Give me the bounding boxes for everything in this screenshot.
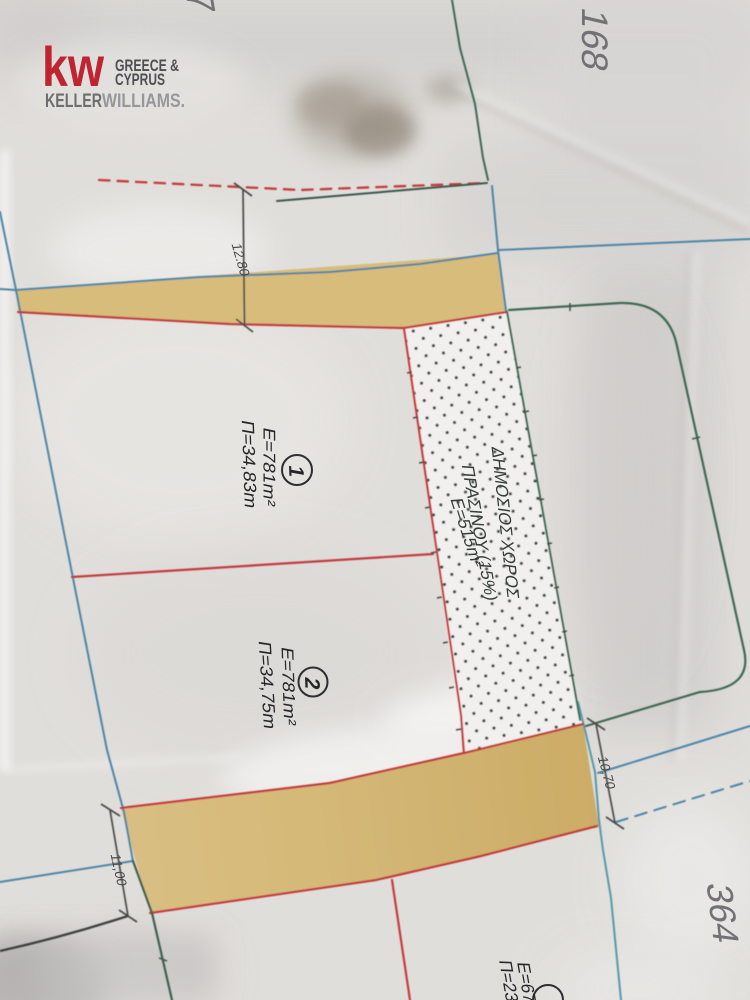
svg-text:KELLER: KELLER	[45, 91, 102, 112]
svg-text:kw: kw	[42, 35, 104, 98]
svg-text:Π=34,83m: Π=34,83m	[238, 419, 261, 510]
svg-text:WILLIAMS.: WILLIAMS.	[102, 91, 185, 112]
svg-text:Ε=781m²: Ε=781m²	[260, 426, 280, 509]
svg-text:CYPRUS: CYPRUS	[115, 70, 165, 89]
svg-text:Ε=781m²: Ε=781m²	[277, 646, 300, 728]
svg-text:364: 364	[698, 881, 747, 946]
svg-text:168: 168	[574, 4, 615, 75]
